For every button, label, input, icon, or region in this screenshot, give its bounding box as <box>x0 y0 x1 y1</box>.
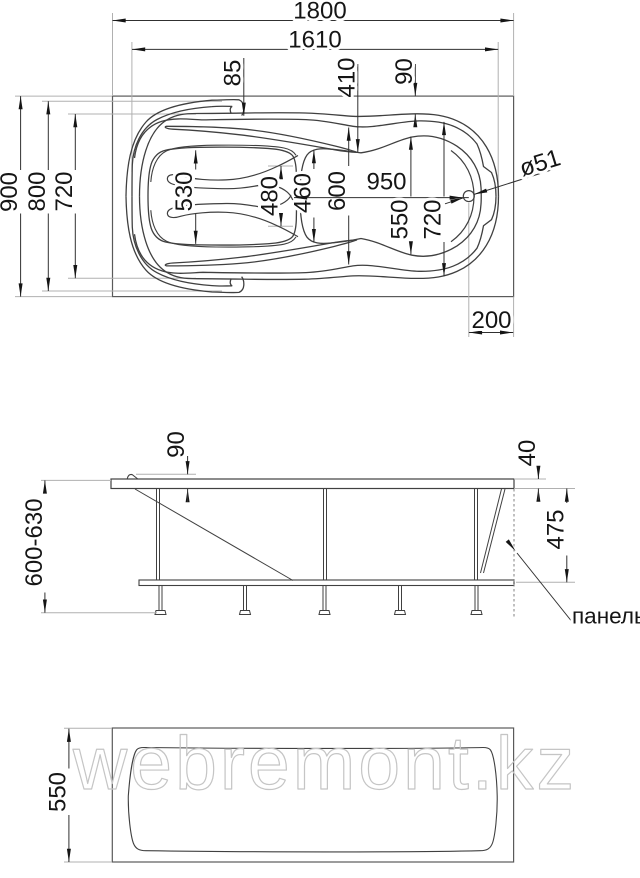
svg-text:webremont.kz: webremont.kz <box>72 721 577 805</box>
svg-text:600: 600 <box>324 171 351 211</box>
svg-text:200: 200 <box>471 307 511 334</box>
svg-text:410: 410 <box>333 57 360 97</box>
svg-text:530: 530 <box>171 171 198 211</box>
svg-text:90: 90 <box>163 431 190 458</box>
svg-text:1800: 1800 <box>293 0 346 25</box>
svg-text:1610: 1610 <box>288 26 341 53</box>
svg-text:720: 720 <box>51 171 78 211</box>
svg-text:480: 480 <box>257 176 284 216</box>
svg-text:90: 90 <box>391 58 418 85</box>
svg-text:40: 40 <box>514 440 541 467</box>
svg-text:900: 900 <box>0 172 23 212</box>
svg-text:600-630: 600-630 <box>21 498 48 586</box>
svg-text:800: 800 <box>24 171 51 211</box>
svg-text:460: 460 <box>289 173 316 213</box>
svg-text:550: 550 <box>386 199 413 239</box>
svg-text:панель: панель <box>572 604 640 629</box>
svg-text:550: 550 <box>44 772 71 812</box>
svg-text:85: 85 <box>219 60 246 87</box>
svg-text:950: 950 <box>366 168 406 195</box>
svg-text:720: 720 <box>420 199 447 239</box>
svg-text:475: 475 <box>542 509 569 549</box>
